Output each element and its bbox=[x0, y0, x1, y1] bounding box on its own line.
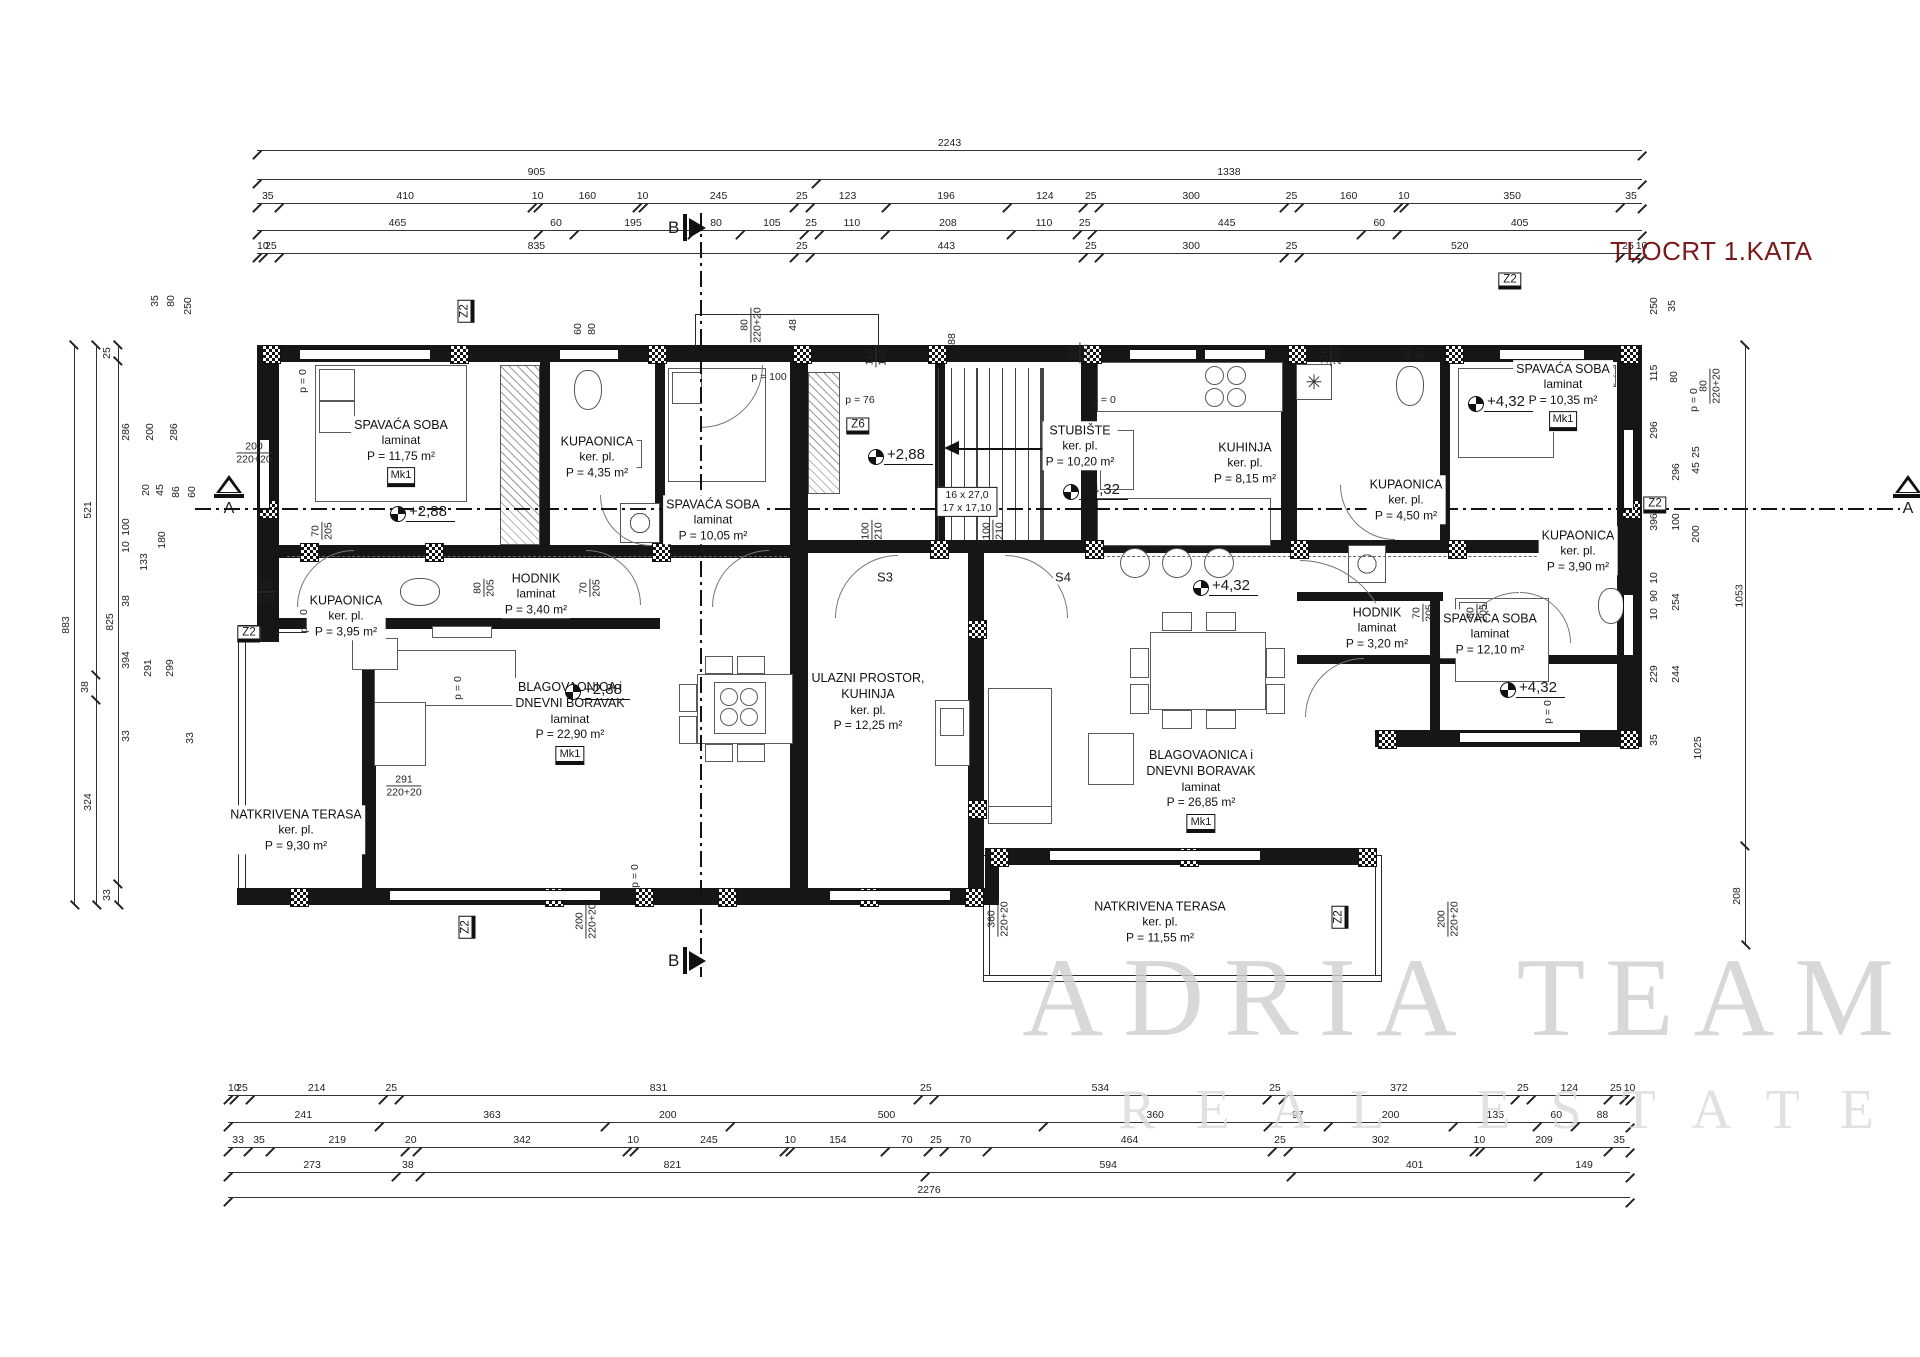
dimension-value: 1338 bbox=[816, 166, 1642, 178]
room-name: HODNIK bbox=[1346, 604, 1408, 620]
dimension-label: 10 bbox=[1648, 572, 1660, 584]
fraction-bottom: 220+20 bbox=[587, 903, 599, 938]
room-name: NATKRIVENA TERASA bbox=[1094, 898, 1226, 914]
annotation-text: p = 0 bbox=[629, 864, 641, 888]
dimension-label: 286 bbox=[120, 423, 132, 441]
fraction-top: 110 bbox=[863, 347, 876, 368]
dimension-value: 160 bbox=[1299, 190, 1398, 202]
furniture bbox=[1130, 684, 1149, 714]
dimension-segment: 208 bbox=[1730, 846, 1746, 945]
thin-wall bbox=[1375, 855, 1382, 982]
dimension-value: 2243 bbox=[257, 137, 1642, 149]
room-area: P = 4,50 m² bbox=[1370, 508, 1443, 524]
dimension-segment: 2276 bbox=[228, 1182, 1630, 1198]
dimension-chain: 241363200500360972001356088 bbox=[228, 1107, 1630, 1123]
room-label: KUPAONICAker. pl.P = 4,50 m² bbox=[1367, 475, 1446, 524]
wall-pier bbox=[930, 540, 949, 559]
dimension-value: 300 bbox=[1099, 240, 1284, 252]
dimension-segment: 123 bbox=[810, 188, 886, 204]
room-area: P = 26,85 m² bbox=[1146, 795, 1255, 811]
wall-segment bbox=[968, 553, 984, 888]
window bbox=[390, 890, 600, 901]
door-swing-arc bbox=[835, 555, 898, 618]
dimension-label: 20 bbox=[140, 484, 152, 496]
material-badge: Mk1 bbox=[1549, 412, 1578, 431]
dimension-chain: 3335219203421024510154702570464253021020… bbox=[228, 1132, 1630, 1148]
level-value: +4,32 bbox=[1209, 577, 1258, 596]
dimension-label: 133 bbox=[138, 553, 150, 571]
fraction-bottom: 220+20 bbox=[1449, 901, 1461, 936]
dimension-segment: 245 bbox=[643, 188, 794, 204]
dimension-segment: 25 bbox=[1284, 238, 1299, 254]
dimension-segment: 25 bbox=[794, 238, 809, 254]
dimension-segment: 110 bbox=[819, 215, 885, 231]
dimension-value: 25 bbox=[101, 347, 113, 359]
dimension-value: 594 bbox=[925, 1159, 1291, 1171]
fraction-top: 80 bbox=[1464, 604, 1477, 622]
dimension-label: 45 bbox=[154, 484, 166, 496]
wall-segment bbox=[790, 362, 808, 888]
furniture bbox=[720, 688, 738, 706]
dimension-fraction: 80205 bbox=[1464, 604, 1489, 622]
level-marker: +4,32 bbox=[1063, 481, 1128, 500]
furniture bbox=[705, 656, 733, 674]
section-mark-a: A bbox=[214, 475, 244, 518]
dimension-segment: 831 bbox=[399, 1080, 918, 1096]
dimension-label: 291 bbox=[142, 659, 154, 677]
furniture bbox=[352, 638, 398, 670]
room-floor-finish: laminat bbox=[1516, 377, 1610, 393]
furniture bbox=[1130, 648, 1149, 678]
room-name: STUBIŠTE bbox=[1046, 422, 1115, 438]
level-marker: +2,88 bbox=[390, 503, 455, 522]
dimension-segment: 25 bbox=[1083, 188, 1098, 204]
element-mark: Z2 bbox=[1498, 273, 1521, 290]
dimension-segment: 196 bbox=[886, 188, 1007, 204]
dimension-label: 35 bbox=[149, 295, 161, 307]
dimension-segment: 360 bbox=[1043, 1107, 1268, 1123]
fraction-bottom: 205 bbox=[323, 522, 335, 540]
dimension-value: 25 bbox=[804, 217, 819, 229]
section-bar bbox=[683, 214, 687, 241]
room-name: SPAVAĆA SOBA bbox=[1443, 610, 1537, 626]
section-letter: B bbox=[668, 951, 679, 971]
room-floor-finish: ker. pl. bbox=[812, 703, 925, 719]
window bbox=[1500, 349, 1584, 360]
dimension-value: 196 bbox=[886, 190, 1007, 202]
section-bar bbox=[214, 494, 244, 498]
dimension-segment: 521 bbox=[81, 345, 97, 675]
dimension-fraction: 80220+20 bbox=[738, 307, 763, 342]
level-value: +4,32 bbox=[1079, 481, 1128, 500]
annotation-text: p = 100 bbox=[751, 371, 786, 383]
fraction-top: 80 bbox=[738, 307, 751, 342]
dimension-segment: 1338 bbox=[816, 164, 1642, 180]
furniture bbox=[1206, 710, 1236, 729]
dimension-value: 10 bbox=[1624, 1082, 1630, 1094]
level-marker: +4,32 bbox=[1468, 393, 1533, 412]
window bbox=[1623, 430, 1634, 510]
dimension-value: 25 bbox=[1267, 1082, 1283, 1094]
room-floor-finish: ker. pl. bbox=[1094, 915, 1226, 931]
dimension-segment: 363 bbox=[379, 1107, 606, 1123]
room-floor-finish: ker. pl. bbox=[1370, 493, 1443, 509]
furniture bbox=[1266, 684, 1285, 714]
dimension-value: 465 bbox=[257, 217, 538, 229]
dimension-fraction: 110220 bbox=[1067, 343, 1092, 364]
door-swing-arc bbox=[600, 495, 651, 546]
dimension-value: 25 bbox=[1272, 1134, 1287, 1146]
room-area: P = 12,25 m² bbox=[812, 718, 925, 734]
dimension-label: 80 bbox=[1668, 371, 1680, 383]
dimension-segment: 300 bbox=[1099, 238, 1284, 254]
room-label: HODNIKlaminatP = 3,20 m² bbox=[1343, 603, 1411, 652]
dimension-label: 250 bbox=[1648, 297, 1660, 315]
wall-pier bbox=[968, 800, 987, 819]
dimension-value: 25 bbox=[794, 240, 809, 252]
dimension-segment: 25 bbox=[918, 1080, 934, 1096]
section-bar bbox=[683, 947, 687, 974]
dimension-value: 88 bbox=[1575, 1109, 1630, 1121]
room-floor-finish: laminat bbox=[354, 433, 448, 449]
fraction-top: 70 bbox=[577, 579, 590, 597]
wall-pier bbox=[300, 543, 319, 562]
fraction-top: 200 bbox=[1435, 901, 1448, 936]
level-symbol-icon bbox=[1063, 484, 1079, 500]
wall-segment bbox=[1281, 362, 1297, 553]
fraction-top: 360 bbox=[985, 901, 998, 936]
dimension-chain: 4656019580105251102081102544560405 bbox=[257, 215, 1642, 231]
room-name: KUHINJA bbox=[812, 686, 925, 702]
dimension-segment: 208 bbox=[885, 215, 1011, 231]
furniture bbox=[1097, 498, 1271, 546]
room-name: KUPAONICA bbox=[1542, 527, 1615, 543]
stair-tread-note: 17 x 17,10 bbox=[942, 502, 991, 515]
room-area: P = 11,75 m² bbox=[354, 449, 448, 465]
annotation-text: p = 0 bbox=[452, 676, 464, 700]
dimension-segment: 25 bbox=[1272, 1132, 1287, 1148]
furniture bbox=[808, 372, 840, 494]
dimension-segment: 38 bbox=[81, 675, 97, 699]
wall-pier bbox=[990, 848, 1009, 867]
fraction-top: 70 bbox=[309, 522, 322, 540]
room-label: ULAZNI PROSTOR,KUHINJAker. pl.P = 12,25 … bbox=[809, 669, 928, 735]
dimension-segment: 60 bbox=[1537, 1107, 1574, 1123]
furniture bbox=[500, 365, 540, 545]
dimension-value: 25 bbox=[794, 190, 809, 202]
dimension-chain: 2243 bbox=[257, 135, 1642, 151]
furniture bbox=[1162, 612, 1192, 631]
dimension-value: 110 bbox=[819, 217, 885, 229]
dimension-value: 25 bbox=[1515, 1082, 1531, 1094]
dimension-value: 521 bbox=[82, 501, 94, 519]
dimension-segment: 825 bbox=[103, 361, 119, 884]
dimension-segment: 410 bbox=[279, 188, 532, 204]
dimension-fraction: 200220+20 bbox=[1435, 901, 1460, 936]
dimension-value: 825 bbox=[104, 614, 116, 632]
dimension-value: 38 bbox=[79, 682, 91, 694]
material-badge: Mk1 bbox=[387, 468, 416, 487]
fraction-top: 200 bbox=[573, 903, 586, 938]
room-floor-finish: ker. pl. bbox=[310, 609, 383, 625]
dimension-chain: 1025214258312553425372251242510 bbox=[228, 1080, 1630, 1096]
stair-tread bbox=[1015, 368, 1016, 540]
room-floor-finish: laminat bbox=[515, 712, 624, 728]
dimension-value: 25 bbox=[928, 1134, 943, 1146]
dimension-segment: 214 bbox=[250, 1080, 384, 1096]
dimension-value: 25 bbox=[1284, 190, 1299, 202]
level-symbol-icon bbox=[1500, 682, 1516, 698]
fraction-top: 60 bbox=[257, 579, 275, 592]
dimension-label: 286 bbox=[168, 423, 180, 441]
room-floor-finish: ker. pl. bbox=[561, 450, 634, 466]
room-floor-finish: laminat bbox=[1443, 627, 1537, 643]
dimension-fraction: 100210 bbox=[859, 520, 884, 542]
dimension-segment: 821 bbox=[420, 1157, 926, 1173]
dimension-value: 1053 bbox=[1734, 584, 1746, 607]
level-symbol-icon bbox=[1193, 580, 1209, 596]
fraction-bottom: 205 bbox=[591, 579, 603, 597]
dimension-value: 25 bbox=[1284, 240, 1299, 252]
dimension-value: 35 bbox=[1608, 1134, 1630, 1146]
furniture bbox=[1088, 733, 1134, 785]
furniture bbox=[737, 744, 765, 762]
dimension-value: 219 bbox=[270, 1134, 405, 1146]
level-symbol-icon bbox=[390, 506, 406, 522]
dimension-value: 302 bbox=[1288, 1134, 1474, 1146]
element-mark: Z2 bbox=[458, 299, 475, 322]
level-symbol-icon bbox=[1468, 396, 1484, 412]
dimension-value: 160 bbox=[538, 190, 637, 202]
dimension-value: 33 bbox=[101, 889, 113, 901]
dimension-segment: 124 bbox=[1531, 1080, 1608, 1096]
dimension-value: 273 bbox=[228, 1159, 396, 1171]
dimension-segment: 35 bbox=[257, 188, 279, 204]
wall-segment bbox=[1617, 345, 1642, 747]
dimension-fraction: 291220+20 bbox=[386, 773, 421, 798]
room-label: KUPAONICAker. pl.P = 3,95 m² bbox=[307, 591, 386, 640]
wall-pier bbox=[425, 543, 444, 562]
level-value: +2,88 bbox=[406, 503, 455, 522]
furniture bbox=[988, 806, 1052, 824]
fraction-bottom: 144 bbox=[877, 348, 889, 366]
dimension-value: 214 bbox=[250, 1082, 384, 1094]
wall-pier bbox=[1448, 540, 1467, 559]
dimension-fraction: 60220 bbox=[257, 579, 275, 604]
level-value: +2,88 bbox=[581, 681, 630, 700]
dimension-segment: 70 bbox=[885, 1132, 928, 1148]
furniture bbox=[374, 702, 426, 766]
dimension-label: 90 bbox=[1648, 590, 1660, 602]
annotation-text: p = 76 bbox=[845, 394, 875, 406]
level-symbol-icon bbox=[565, 684, 581, 700]
wall-pier bbox=[1358, 848, 1377, 867]
dimension-value: 70 bbox=[944, 1134, 987, 1146]
room-name: SPAVAĆA SOBA bbox=[666, 496, 760, 512]
element-mark: Z2 bbox=[1643, 497, 1666, 514]
toilet-icon bbox=[400, 578, 440, 606]
door-mark: S3 bbox=[875, 570, 895, 585]
dimension-value: 135 bbox=[1453, 1109, 1537, 1121]
dimension-value: 500 bbox=[730, 1109, 1042, 1121]
dimension-segment: 405 bbox=[1397, 215, 1642, 231]
furniture bbox=[940, 708, 964, 736]
room-area: P = 11,55 m² bbox=[1094, 930, 1226, 946]
dimension-chain: 10258352544325300255202510 bbox=[257, 238, 1642, 254]
furniture bbox=[1204, 548, 1234, 578]
fraction-bottom: 220 bbox=[1332, 347, 1344, 365]
furniture bbox=[740, 688, 758, 706]
door-swing-arc bbox=[1305, 658, 1364, 717]
dimension-label: 33 bbox=[120, 730, 132, 742]
dimension-fraction: 80205 bbox=[471, 579, 496, 597]
dimension-value: 534 bbox=[934, 1082, 1267, 1094]
room-floor-finish: ker. pl. bbox=[230, 823, 362, 839]
dimension-fraction: 80220+20 bbox=[1697, 368, 1722, 403]
window bbox=[1205, 349, 1265, 360]
door-swing-arc bbox=[1005, 555, 1068, 618]
dimension-segment: 35 bbox=[1620, 188, 1642, 204]
dimension-value: 324 bbox=[82, 793, 94, 811]
dimension-segment: 10 bbox=[1624, 1080, 1630, 1096]
dimension-value: 25 bbox=[1083, 240, 1098, 252]
fraction-top: 110 bbox=[1067, 343, 1080, 364]
dimension-label: 200 bbox=[1690, 525, 1702, 543]
fraction-bottom: 210 bbox=[873, 522, 885, 540]
room-label: NATKRIVENA TERASAker. pl.P = 9,30 m² bbox=[227, 805, 365, 854]
stair-tread bbox=[1028, 368, 1029, 540]
fraction-top: 100 bbox=[859, 520, 872, 542]
annotation-text: 80 bbox=[586, 323, 598, 335]
fraction-bottom: 220 bbox=[257, 593, 275, 605]
room-area: P = 10,20 m² bbox=[1046, 454, 1115, 470]
window bbox=[830, 890, 950, 901]
dimension-segment: 500 bbox=[730, 1107, 1042, 1123]
element-mark: Z2 bbox=[237, 626, 260, 643]
dimension-label: 86 bbox=[170, 486, 182, 498]
dimension-label: 10 bbox=[120, 541, 132, 553]
dimension-label: 394 bbox=[120, 651, 132, 669]
dimension-value: 443 bbox=[810, 240, 1084, 252]
room-floor-finish: ker. pl. bbox=[1542, 544, 1615, 560]
dimension-segment: 200 bbox=[605, 1107, 730, 1123]
dimension-label: 25 bbox=[1690, 446, 1702, 458]
stair-arrow-head bbox=[944, 441, 959, 455]
fraction-top: 80 bbox=[471, 579, 484, 597]
dimension-segment: 25 bbox=[1515, 1080, 1531, 1096]
fraction-top: 70 bbox=[1410, 604, 1423, 622]
dimension-chain: 27338821594401149 bbox=[228, 1157, 1630, 1173]
dimension-label: 33 bbox=[184, 732, 196, 744]
dimension-value: 200 bbox=[605, 1109, 730, 1121]
floor-plan-page: ✳SPAVAĆA SOBAlaminatP = 11,75 m²Mk1KUPAO… bbox=[0, 0, 1920, 1357]
section-triangle-icon bbox=[216, 475, 242, 493]
room-area: P = 9,30 m² bbox=[230, 838, 362, 854]
dimension-segment: 160 bbox=[1299, 188, 1398, 204]
element-mark: Z6 bbox=[846, 418, 869, 435]
dimension-label: 100 bbox=[120, 518, 132, 536]
dimension-segment: 219 bbox=[270, 1132, 405, 1148]
dimension-value: 35 bbox=[1620, 190, 1642, 202]
annotation-text: p = 0 bbox=[1542, 700, 1554, 724]
room-area: P = 8,15 m² bbox=[1214, 471, 1276, 487]
dimension-segment: 25 bbox=[1267, 1080, 1283, 1096]
dimension-segment: 883 bbox=[59, 345, 75, 905]
dimension-fraction: 360220+20 bbox=[985, 901, 1010, 936]
element-mark: Z2 bbox=[1332, 905, 1349, 928]
wall-pier bbox=[1445, 345, 1464, 364]
wall-pier bbox=[928, 345, 947, 364]
fraction-bottom: 220+20 bbox=[999, 901, 1011, 936]
dimension-segment: 905 bbox=[257, 164, 816, 180]
level-marker: +2,88 bbox=[565, 681, 630, 700]
dimension-value: 464 bbox=[987, 1134, 1273, 1146]
dimension-value: 60 bbox=[1537, 1109, 1574, 1121]
dimension-value: 401 bbox=[1291, 1159, 1538, 1171]
dimension-fraction: 70205 bbox=[1410, 604, 1435, 622]
dimension-value: 25 bbox=[1608, 1082, 1624, 1094]
window bbox=[1130, 349, 1196, 360]
room-label: STUBIŠTEker. pl.P = 10,20 m² bbox=[1043, 421, 1118, 470]
furniture bbox=[1120, 548, 1150, 578]
dimension-segment: 350 bbox=[1404, 188, 1620, 204]
fraction-bottom: 220+20 bbox=[752, 307, 764, 342]
dimension-segment: 594 bbox=[925, 1157, 1291, 1173]
dimension-segment: 209 bbox=[1480, 1132, 1609, 1148]
room-name: HODNIK bbox=[505, 570, 567, 586]
dimension-value: 97 bbox=[1268, 1109, 1329, 1121]
room-name: NATKRIVENA TERASA bbox=[230, 806, 362, 822]
dimension-label: 299 bbox=[164, 659, 176, 677]
dimension-value: 70 bbox=[885, 1134, 928, 1146]
furniture bbox=[988, 688, 1052, 824]
dimension-chain: 883 bbox=[59, 345, 75, 905]
room-name: DNEVNI BORAVAK bbox=[1146, 763, 1255, 779]
furniture bbox=[1162, 548, 1192, 578]
dimension-value: 124 bbox=[1531, 1082, 1608, 1094]
dimension-value: 35 bbox=[257, 190, 279, 202]
dimension-value: 300 bbox=[1099, 190, 1284, 202]
dimension-segment: 2243 bbox=[257, 135, 1642, 151]
dimension-segment: 1053 bbox=[1730, 345, 1746, 846]
dimension-segment: 241 bbox=[228, 1107, 379, 1123]
dimension-value: 123 bbox=[810, 190, 886, 202]
section-triangle-icon bbox=[689, 951, 706, 971]
window bbox=[300, 349, 430, 360]
dimension-segment: 464 bbox=[987, 1132, 1273, 1148]
annotation-text: p = 0 bbox=[1092, 394, 1116, 406]
section-letter: A bbox=[224, 500, 235, 518]
dimension-value: 520 bbox=[1299, 240, 1620, 252]
furniture bbox=[1162, 710, 1192, 729]
dimension-segment: 88 bbox=[1575, 1107, 1630, 1123]
wall-pier bbox=[1620, 730, 1639, 749]
dashed-reference-line bbox=[287, 556, 787, 557]
annotation-text: 60 bbox=[1401, 347, 1413, 359]
room-floor-finish: laminat bbox=[666, 513, 760, 529]
dimension-label: 244 bbox=[1670, 665, 1682, 683]
dimension-value: 25 bbox=[383, 1082, 399, 1094]
dimension-segment: 372 bbox=[1283, 1080, 1515, 1096]
dimension-value: 200 bbox=[1328, 1109, 1453, 1121]
dimension-value: 905 bbox=[257, 166, 816, 178]
dimension-value: 25 bbox=[918, 1082, 934, 1094]
window bbox=[1050, 850, 1260, 861]
dimension-value: 342 bbox=[417, 1134, 627, 1146]
dimension-chain: 1053208 bbox=[1730, 345, 1746, 945]
dimension-segment: 300 bbox=[1099, 188, 1284, 204]
dimension-value: 38 bbox=[396, 1159, 419, 1171]
